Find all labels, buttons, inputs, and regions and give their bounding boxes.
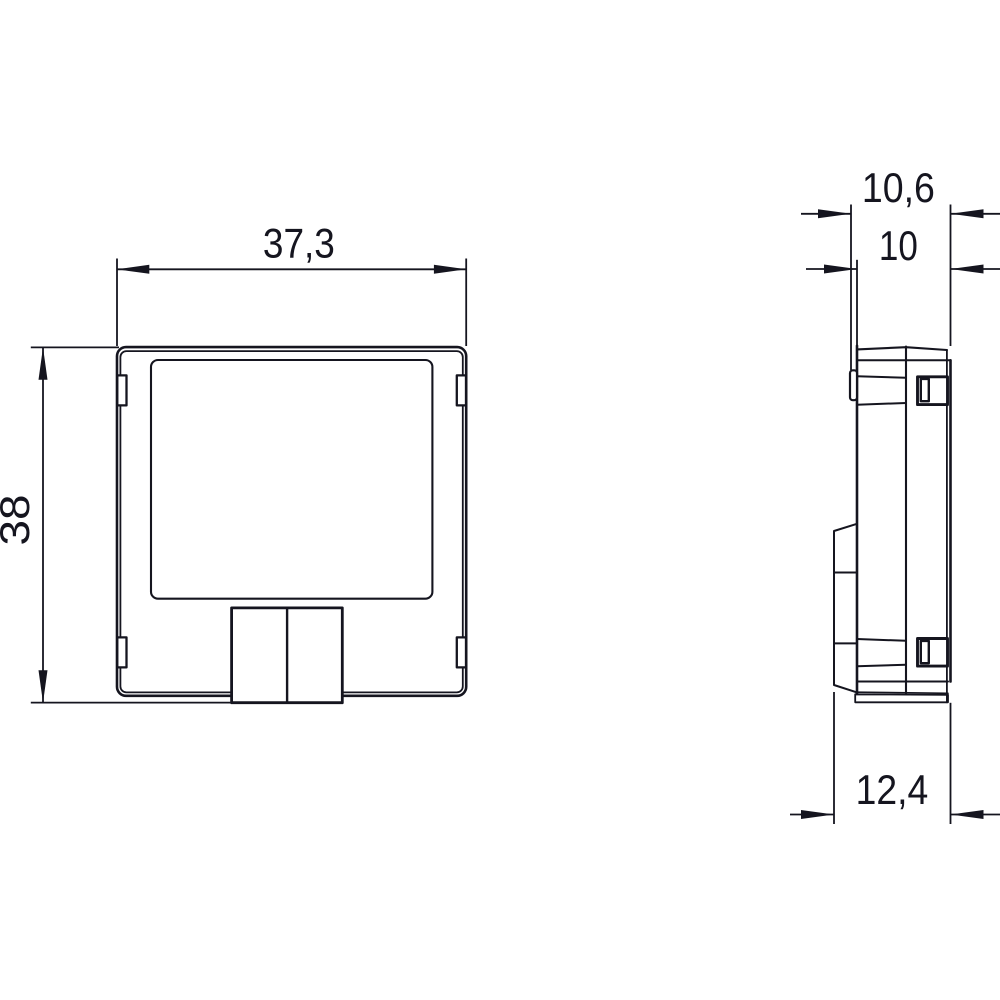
svg-text:10,6: 10,6 xyxy=(862,164,935,211)
svg-text:10: 10 xyxy=(879,222,918,269)
svg-text:12,4: 12,4 xyxy=(856,766,929,813)
svg-text:37,3: 37,3 xyxy=(263,220,335,267)
svg-text:38: 38 xyxy=(0,495,38,546)
